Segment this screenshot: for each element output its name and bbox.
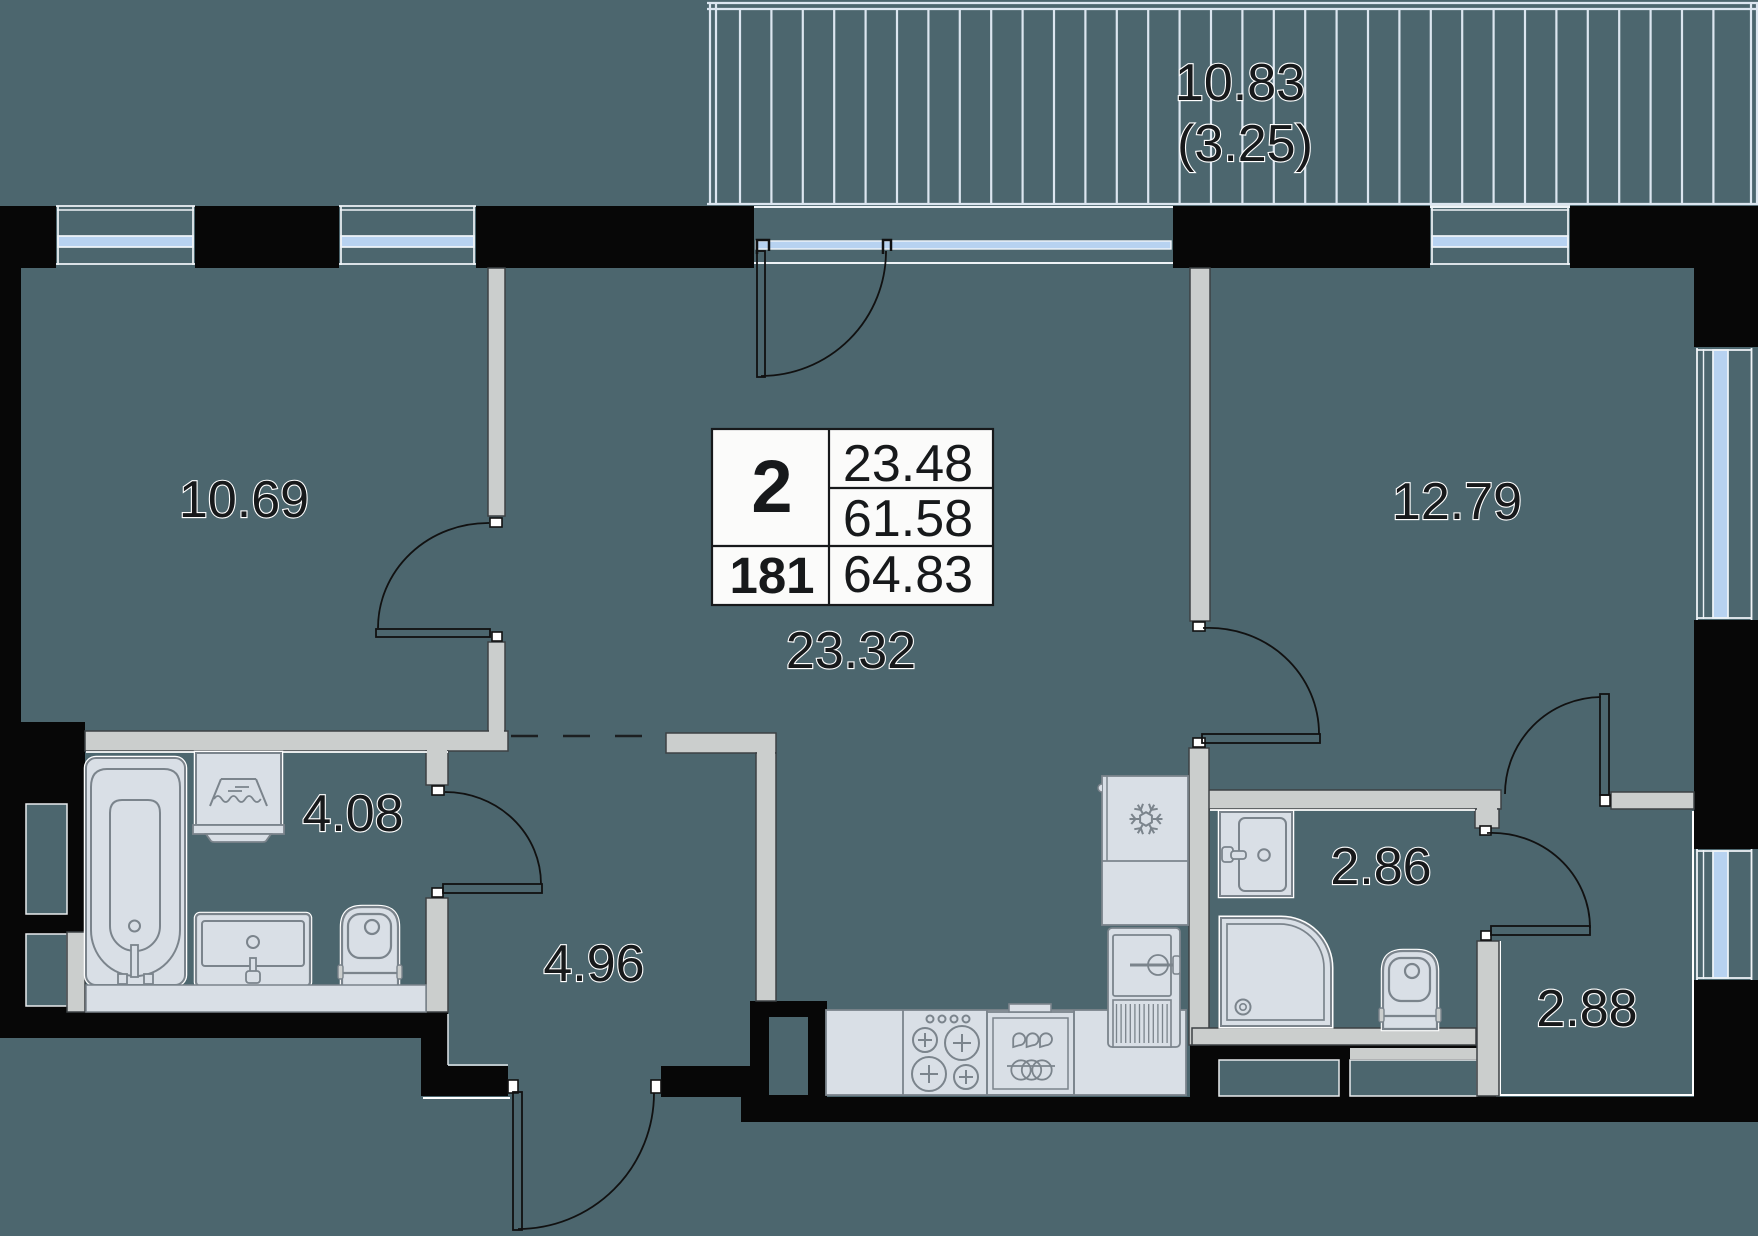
svg-text:2.86: 2.86 <box>1330 838 1431 896</box>
svg-text:64.83: 64.83 <box>843 546 973 604</box>
svg-text:2.88: 2.88 <box>1536 980 1637 1038</box>
svg-text:2: 2 <box>751 445 792 528</box>
svg-text:4.08: 4.08 <box>302 785 403 843</box>
svg-text:12.79: 12.79 <box>1392 473 1522 531</box>
svg-text:23.48: 23.48 <box>843 435 973 493</box>
svg-text:10.69: 10.69 <box>179 471 309 529</box>
svg-text:23.32: 23.32 <box>786 622 916 680</box>
svg-text:(3.25): (3.25) <box>1177 115 1313 173</box>
svg-text:61.58: 61.58 <box>843 490 973 548</box>
svg-text:4.96: 4.96 <box>543 935 644 993</box>
svg-text:181: 181 <box>729 547 814 604</box>
svg-text:10.83: 10.83 <box>1175 54 1305 112</box>
